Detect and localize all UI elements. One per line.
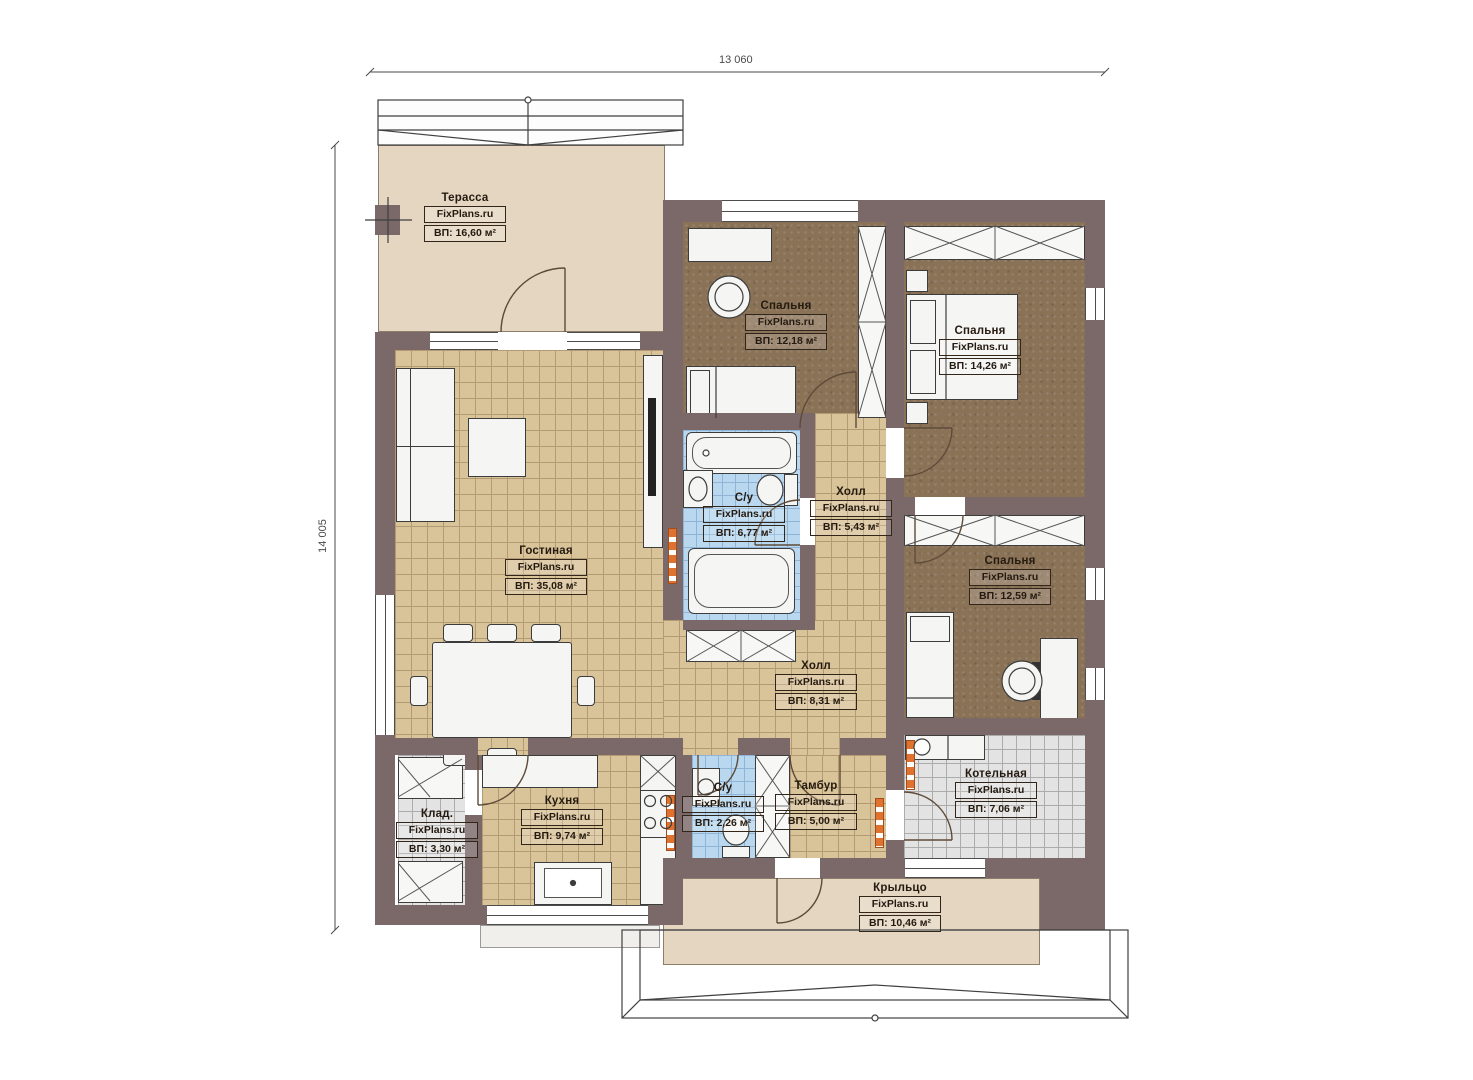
watermark: FixPlans.ru bbox=[505, 559, 587, 576]
room-area: ВП: 2,26 м² bbox=[682, 815, 764, 832]
room-area: ВП: 6,77 м² bbox=[703, 525, 785, 542]
chair bbox=[531, 624, 561, 642]
tv-screen bbox=[648, 398, 656, 496]
room-name: Холл bbox=[810, 486, 892, 498]
window bbox=[1085, 668, 1105, 700]
wall bbox=[683, 620, 800, 630]
room-area: ВП: 35,08 м² bbox=[505, 578, 587, 595]
room-label-terrace: Терасса FixPlans.ru ВП: 16,60 м² bbox=[424, 192, 506, 242]
watermark: FixPlans.ru bbox=[521, 809, 603, 826]
chair bbox=[487, 624, 517, 642]
room-name: Котельная bbox=[955, 768, 1037, 780]
watermark: FixPlans.ru bbox=[682, 796, 764, 813]
room-label-bathroom2: С/у FixPlans.ru ВП: 2,26 м² bbox=[682, 782, 764, 832]
watermark: FixPlans.ru bbox=[775, 794, 857, 811]
room-area: ВП: 12,18 м² bbox=[745, 333, 827, 350]
room-area: ВП: 5,00 м² bbox=[775, 813, 857, 830]
wardrobe bbox=[858, 226, 886, 418]
room-label-hall1: Холл FixPlans.ru ВП: 5,43 м² bbox=[810, 486, 892, 536]
floor-plan-canvas: Терасса FixPlans.ru ВП: 16,60 м² Спальня… bbox=[0, 0, 1473, 1080]
room-label-bedroom3: Спальня FixPlans.ru ВП: 12,59 м² bbox=[969, 555, 1051, 605]
room-name: С/у bbox=[682, 782, 764, 794]
room-label-living: Гостиная FixPlans.ru ВП: 35,08 м² bbox=[505, 545, 587, 595]
room-area: ВП: 16,60 м² bbox=[424, 225, 506, 242]
terrace-column bbox=[375, 205, 400, 235]
wall bbox=[904, 497, 915, 515]
pillow bbox=[910, 616, 950, 642]
watermark: FixPlans.ru bbox=[939, 339, 1021, 356]
room-name: Тамбур bbox=[775, 780, 857, 792]
wardrobe bbox=[904, 226, 1085, 260]
room-label-vestibule: Тамбур FixPlans.ru ВП: 5,00 м² bbox=[775, 780, 857, 830]
room-name: Спальня bbox=[969, 555, 1051, 567]
wall bbox=[886, 222, 904, 428]
kitchen-counter bbox=[482, 755, 598, 788]
room-name: Терасса bbox=[424, 192, 506, 204]
room-area: ВП: 14,26 м² bbox=[939, 358, 1021, 375]
window bbox=[1085, 568, 1105, 600]
bathtub-inner bbox=[694, 554, 789, 608]
wall bbox=[395, 738, 478, 755]
wardrobe bbox=[904, 515, 1085, 546]
wall bbox=[683, 413, 810, 430]
bathtub-inner bbox=[692, 437, 791, 469]
wall bbox=[886, 718, 1085, 735]
dresser bbox=[688, 228, 772, 262]
sofa-cushion-line bbox=[396, 446, 455, 447]
wall bbox=[375, 905, 487, 925]
toilet-tank bbox=[784, 474, 798, 506]
room-label-porch: Крыльцо FixPlans.ru ВП: 10,46 м² bbox=[859, 882, 941, 932]
watermark: FixPlans.ru bbox=[775, 674, 857, 691]
chair bbox=[443, 624, 473, 642]
room-name: Крыльцо bbox=[859, 882, 941, 894]
office-chair-back bbox=[1032, 662, 1040, 700]
wall bbox=[800, 545, 815, 630]
wall bbox=[375, 332, 430, 350]
radiator bbox=[668, 528, 677, 584]
room-name: Спальня bbox=[745, 300, 827, 312]
room-area: ВП: 8,31 м² bbox=[775, 693, 857, 710]
room-area: ВП: 9,74 м² bbox=[521, 828, 603, 845]
window bbox=[375, 595, 395, 735]
room-label-bedroom2: Спальня FixPlans.ru ВП: 14,26 м² bbox=[939, 325, 1021, 375]
watermark: FixPlans.ru bbox=[424, 206, 506, 223]
radiator bbox=[875, 798, 884, 848]
room-name: Спальня bbox=[939, 325, 1021, 337]
window bbox=[722, 200, 858, 222]
room-area: ВП: 7,06 м² bbox=[955, 801, 1037, 818]
room-label-kitchen: Кухня FixPlans.ru ВП: 9,74 м² bbox=[521, 795, 603, 845]
desk bbox=[1040, 638, 1078, 722]
room-label-bathroom1: С/у FixPlans.ru ВП: 6,77 м² bbox=[703, 492, 785, 542]
room-porch bbox=[663, 878, 1040, 965]
room-area: ВП: 3,30 м² bbox=[396, 841, 478, 858]
room-label-storage: Клад. FixPlans.ru ВП: 3,30 м² bbox=[396, 808, 478, 858]
wall bbox=[840, 738, 886, 755]
room-label-bedroom1: Спальня FixPlans.ru ВП: 12,18 м² bbox=[745, 300, 827, 350]
wall bbox=[528, 738, 683, 755]
pillow bbox=[690, 370, 710, 414]
dimension-width: 13 060 bbox=[715, 54, 757, 66]
nightstand bbox=[906, 402, 928, 424]
terrace-awning bbox=[378, 100, 683, 145]
window bbox=[1085, 288, 1105, 320]
room-area: ВП: 10,46 м² bbox=[859, 915, 941, 932]
window bbox=[487, 905, 648, 925]
hall-cabinet bbox=[686, 630, 796, 662]
dining-table bbox=[432, 642, 572, 738]
watermark: FixPlans.ru bbox=[810, 500, 892, 517]
boiler-unit bbox=[905, 735, 985, 760]
room-area: ВП: 5,43 м² bbox=[810, 519, 892, 536]
watermark: FixPlans.ru bbox=[955, 782, 1037, 799]
sofa-backrest bbox=[410, 368, 411, 522]
dimension-height: 14 005 bbox=[317, 515, 329, 557]
kitchen-sink bbox=[544, 868, 602, 898]
room-name: Клад. bbox=[396, 808, 478, 820]
watermark: FixPlans.ru bbox=[396, 822, 478, 839]
storage-shelf bbox=[398, 861, 463, 903]
pillow bbox=[910, 300, 936, 344]
room-name: Кухня bbox=[521, 795, 603, 807]
window bbox=[905, 858, 985, 878]
nightstand bbox=[906, 270, 928, 292]
watermark: FixPlans.ru bbox=[859, 896, 941, 913]
sofa bbox=[396, 368, 455, 522]
watermark: FixPlans.ru bbox=[745, 314, 827, 331]
room-label-boiler: Котельная FixPlans.ru ВП: 7,06 м² bbox=[955, 768, 1037, 818]
wall bbox=[738, 738, 790, 755]
wall bbox=[965, 497, 1085, 515]
radiator bbox=[666, 795, 675, 851]
window bbox=[430, 332, 498, 350]
room-name: С/у bbox=[703, 492, 785, 504]
room-area: ВП: 12,59 м² bbox=[969, 588, 1051, 605]
wall bbox=[985, 858, 1105, 878]
toilet-tank bbox=[722, 846, 750, 858]
radiator bbox=[906, 740, 915, 790]
room-name: Гостиная bbox=[505, 545, 587, 557]
room-name: Холл bbox=[775, 660, 857, 672]
room-label-hall2: Холл FixPlans.ru ВП: 8,31 м² bbox=[775, 660, 857, 710]
window bbox=[567, 332, 640, 350]
coffee-table bbox=[468, 418, 526, 477]
wall bbox=[886, 840, 904, 878]
watermark: FixPlans.ru bbox=[969, 569, 1051, 586]
watermark: FixPlans.ru bbox=[703, 506, 785, 523]
pillow bbox=[910, 350, 936, 394]
room-terrace bbox=[378, 145, 665, 332]
chair bbox=[410, 676, 428, 706]
wall bbox=[465, 755, 482, 770]
chair bbox=[577, 676, 595, 706]
wall bbox=[1085, 222, 1105, 878]
blind-area bbox=[480, 925, 660, 948]
